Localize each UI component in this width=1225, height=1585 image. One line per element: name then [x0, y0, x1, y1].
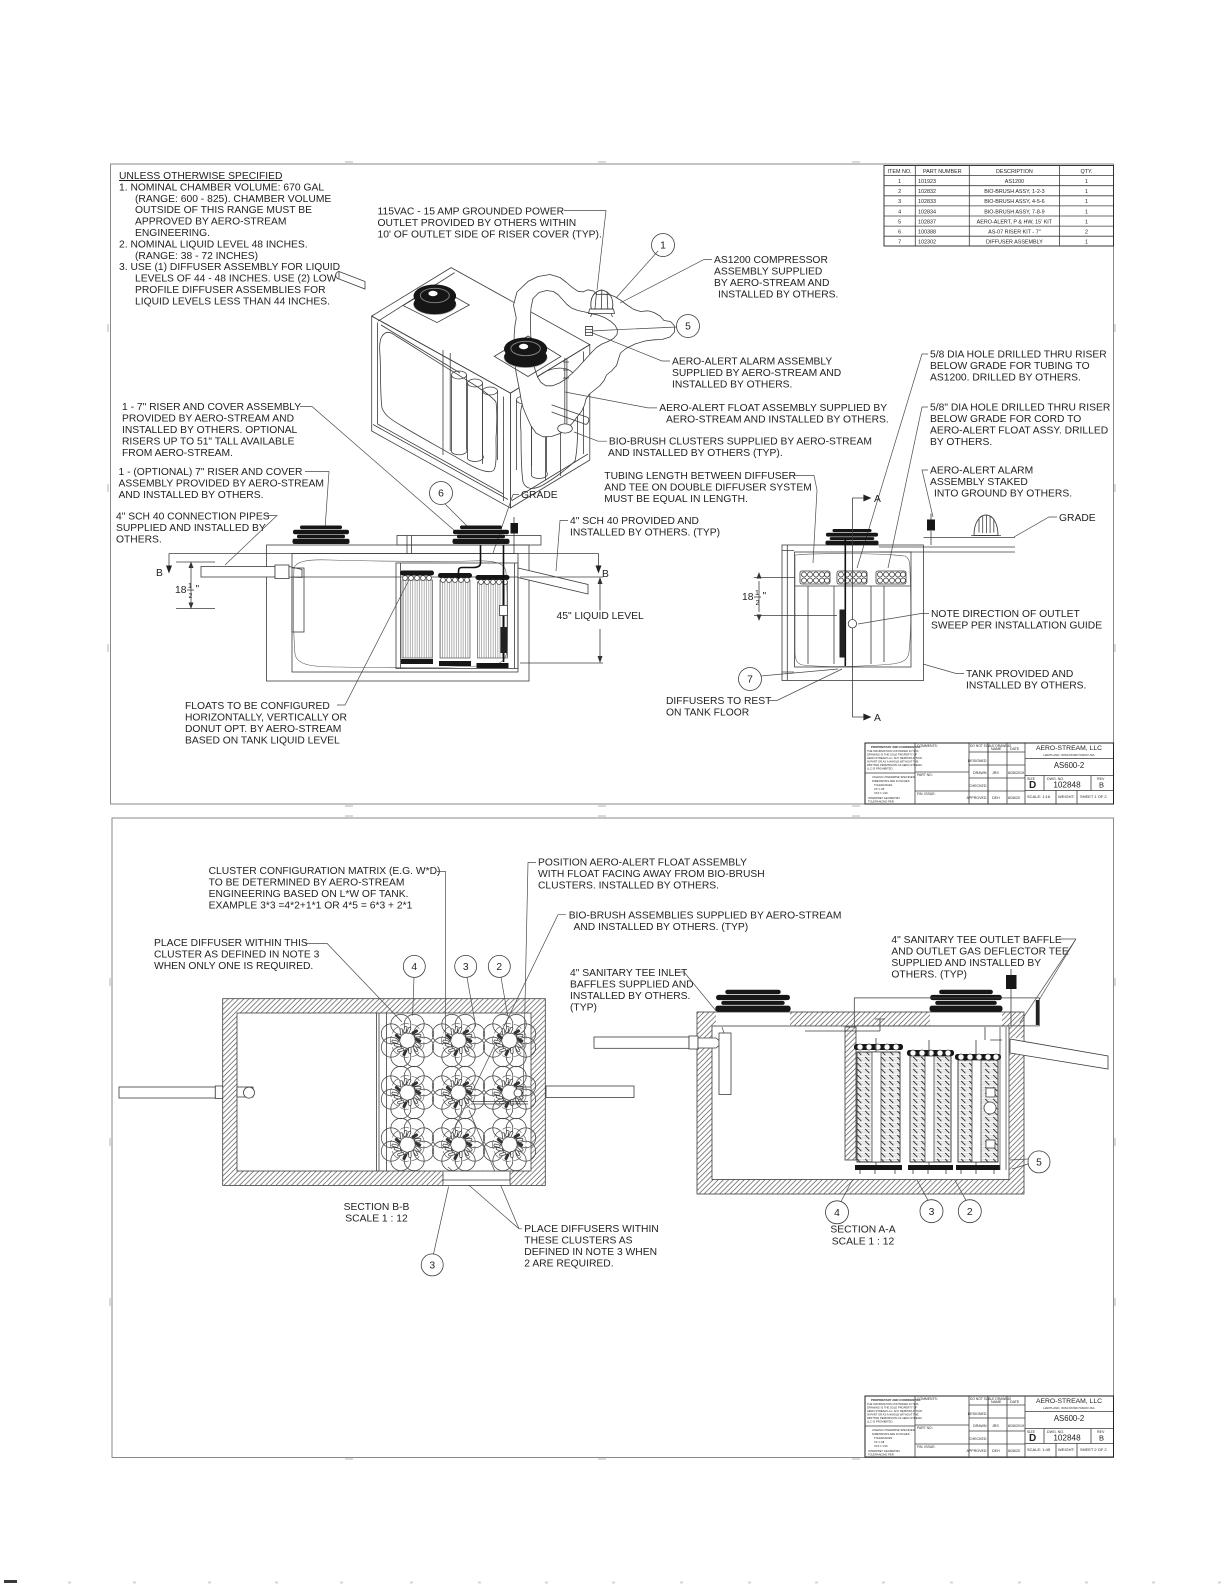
- svg-text:1: 1: [188, 583, 192, 590]
- svg-text:UNLESS OTHERWISE SPECIFIED: UNLESS OTHERWISE SPECIFIED: [119, 171, 282, 182]
- svg-text:DEH: DEH: [992, 796, 1000, 800]
- svg-text:SCALE 1 : 12: SCALE 1 : 12: [345, 1214, 408, 1225]
- svg-text:ENGINEERING BASED ON L*W OF TA: ENGINEERING BASED ON L*W OF TANK.: [209, 889, 409, 900]
- svg-text:SECTION B-B: SECTION B-B: [344, 1202, 410, 1213]
- svg-text:102832: 102832: [918, 189, 936, 195]
- svg-text:B: B: [1099, 781, 1104, 790]
- svg-text:AND TEE ON DOUBLE DIFFUSER SYS: AND TEE ON DOUBLE DIFFUSER SYSTEM: [604, 483, 812, 494]
- svg-text:1: 1: [1085, 199, 1088, 205]
- svg-text:HARTLAND, WISCONSIN 53029 USA: HARTLAND, WISCONSIN 53029 USA: [1043, 753, 1094, 757]
- svg-text:DRAWN: DRAWN: [973, 771, 987, 775]
- svg-text:DESCRIPTION: DESCRIPTION: [996, 169, 1033, 175]
- svg-text:SCALE: 1:16: SCALE: 1:16: [1027, 794, 1051, 799]
- svg-text:ON TANK FLOOR: ON TANK FLOOR: [666, 708, 749, 719]
- svg-text:INSTALLED BY OTHERS. (TYP): INSTALLED BY OTHERS. (TYP): [570, 528, 720, 539]
- svg-text:D: D: [1029, 780, 1036, 791]
- svg-text:TUBING LENGTH BETWEEN DIFFUSER: TUBING LENGTH BETWEEN DIFFUSER: [604, 471, 796, 482]
- svg-text:AND INSTALLED BY OTHERS (TYP).: AND INSTALLED BY OTHERS (TYP).: [608, 448, 783, 459]
- svg-text:XXX ± 1/16: XXX ± 1/16: [874, 791, 888, 795]
- svg-text:2: 2: [756, 600, 760, 607]
- svg-text:AERO-ALERT, P & HW, 15' KIT: AERO-ALERT, P & HW, 15' KIT: [977, 219, 1053, 225]
- svg-text:OTHERS. (TYP): OTHERS. (TYP): [891, 970, 967, 981]
- svg-text:COMMENTS:: COMMENTS:: [917, 744, 938, 748]
- svg-text:BIO-BRUSH ASSY, 7-8-9: BIO-BRUSH ASSY, 7-8-9: [984, 209, 1044, 215]
- svg-text:HORIZONTALLY, VERTICALLY OR: HORIZONTALLY, VERTICALLY OR: [185, 713, 347, 724]
- svg-text:1: 1: [1085, 219, 1088, 225]
- svg-text:INSTALLED BY OTHERS.: INSTALLED BY OTHERS.: [672, 380, 792, 391]
- svg-text:1: 1: [1085, 179, 1088, 185]
- svg-text:LEVELS OF 44 - 48 INCHES. USE: LEVELS OF 44 - 48 INCHES. USE (2) LOW: [135, 274, 337, 285]
- svg-text:AERO-ALERT FLOAT ASSEMBLY SUPP: AERO-ALERT FLOAT ASSEMBLY SUPPLIED BY: [659, 403, 887, 414]
- svg-text:PART NO:: PART NO:: [917, 773, 933, 777]
- svg-text:ASSEMBLY STAKED: ASSEMBLY STAKED: [930, 477, 1028, 488]
- svg-text:INSTALLED BY OTHERS.: INSTALLED BY OTHERS.: [966, 681, 1086, 692]
- svg-text:AERO-ALERT ALARM: AERO-ALERT ALARM: [930, 466, 1033, 477]
- svg-text:OUTSIDE OF THIS RANGE MUST BE: OUTSIDE OF THIS RANGE MUST BE: [135, 205, 312, 216]
- svg-text:DESIGNED: DESIGNED: [968, 759, 987, 763]
- svg-text:APPROVED BY AERO-STREAM: APPROVED BY AERO-STREAM: [135, 217, 286, 228]
- svg-text:AND OUTLET GAS DEFLECTOR TEE: AND OUTLET GAS DEFLECTOR TEE: [891, 947, 1069, 958]
- svg-text:4" SCH 40 PROVIDED AND: 4" SCH 40 PROVIDED AND: [570, 516, 699, 527]
- svg-text:8/28/2019: 8/28/2019: [1008, 771, 1024, 775]
- svg-text:THE INFORMATION CONTAINED IN T: THE INFORMATION CONTAINED IN THIS: [867, 749, 919, 753]
- svg-text:CHECKED: CHECKED: [969, 784, 987, 788]
- svg-text:MUST BE EQUAL IN LENGTH.: MUST BE EQUAL IN LENGTH.: [604, 494, 748, 505]
- svg-text:FLOATS TO BE CONFIGURED: FLOATS TO BE CONFIGURED: [185, 701, 330, 712]
- svg-text:BASED ON TANK LIQUID LEVEL: BASED ON TANK LIQUID LEVEL: [185, 736, 340, 747]
- svg-text:B: B: [156, 568, 163, 579]
- svg-text:(TYP): (TYP): [570, 1003, 597, 1014]
- svg-text:LLC IS PROHIBITED.: LLC IS PROHIBITED.: [867, 767, 893, 771]
- svg-text:BY OTHERS.: BY OTHERS.: [930, 437, 992, 448]
- svg-text:2: 2: [496, 962, 502, 973]
- svg-text:1. NOMINAL CHAMBER VOLUME: 6: 1. NOMINAL CHAMBER VOLUME: 670 GAL: [119, 182, 324, 193]
- svg-text:2: 2: [898, 189, 901, 195]
- svg-text:5: 5: [898, 219, 901, 225]
- svg-text:7: 7: [747, 675, 753, 686]
- svg-text:CLUSTER CONFIGURATION MATRIX (: CLUSTER CONFIGURATION MATRIX (E.G. W*D): [209, 866, 441, 877]
- svg-text:INSTALLED BY OTHERS.: INSTALLED BY OTHERS.: [718, 290, 838, 301]
- svg-text:AERO-STREAM LLC. ANY REPRODUC: AERO-STREAM LLC. ANY REPRODUCTION: [867, 756, 922, 760]
- svg-text:THESE CLUSTERS AS: THESE CLUSTERS AS: [524, 1236, 632, 1247]
- svg-text:PART NUMBER: PART NUMBER: [923, 169, 962, 175]
- svg-text:115VAC - 15 AMP GROUNDED POWER: 115VAC - 15 AMP GROUNDED POWER: [378, 207, 565, 218]
- svg-text:": ": [196, 584, 200, 595]
- svg-text:BIO-BRUSH ASSY, 1-2-3: BIO-BRUSH ASSY, 1-2-3: [984, 189, 1044, 195]
- svg-text:GRADE: GRADE: [521, 490, 558, 501]
- svg-text:DEFINED IN NOTE 3 WHEN: DEFINED IN NOTE 3 WHEN: [524, 1247, 657, 1258]
- svg-text:3. USE (1) DIFFUSER ASSEMBLY: 3. USE (1) DIFFUSER ASSEMBLY FOR LIQUID: [119, 262, 340, 273]
- svg-text:AND INSTALLED BY OTHERS. (TYP: AND INSTALLED BY OTHERS. (TYP): [574, 922, 749, 933]
- svg-text:APPROVED: APPROVED: [967, 796, 987, 800]
- svg-text:5/8" DIA HOLE DRILLED THRU RIS: 5/8" DIA HOLE DRILLED THRU RISER: [930, 403, 1110, 414]
- svg-text:SUPPLIED AND INSTALLED BY: SUPPLIED AND INSTALLED BY: [891, 958, 1041, 969]
- svg-text:AS600-2: AS600-2: [1054, 761, 1084, 770]
- svg-text:102837: 102837: [918, 219, 936, 225]
- svg-text:102833: 102833: [918, 199, 936, 205]
- svg-text:WHEN ONLY ONE IS REQUIRED.: WHEN ONLY ONE IS REQUIRED.: [154, 961, 313, 972]
- svg-text:4" SANITARY TEE OUTLET BAFFLE: 4" SANITARY TEE OUTLET BAFFLE: [891, 935, 1061, 946]
- svg-text:IN PART OR AS A WHOLE WITHOUT: IN PART OR AS A WHOLE WITHOUT THE: [867, 760, 919, 764]
- svg-text:2 ARE REQUIRED.: 2 ARE REQUIRED.: [524, 1259, 613, 1270]
- svg-text:BY AERO-STREAM AND: BY AERO-STREAM AND: [714, 278, 829, 289]
- svg-text:INTERPRET GEOMETRIC: INTERPRET GEOMETRIC: [868, 796, 900, 800]
- svg-text:TOLERANCING PER:: TOLERANCING PER:: [868, 800, 895, 804]
- svg-text:FIN. ISSUE:: FIN. ISSUE:: [917, 792, 936, 796]
- svg-text:WITH FLOAT FACING AWAY FROM BI: WITH FLOAT FACING AWAY FROM BIO-BRUSH: [538, 869, 765, 880]
- svg-text:QTY.: QTY.: [1081, 169, 1093, 175]
- svg-text:SUPPLIED BY AERO-STREAM AND: SUPPLIED BY AERO-STREAM AND: [672, 368, 841, 379]
- svg-text:PLACE DIFFUSER WITHIN THIS: PLACE DIFFUSER WITHIN THIS: [154, 938, 308, 949]
- svg-text:NOTE DIRECTION OF OUTLET: NOTE DIRECTION OF OUTLET: [931, 609, 1080, 620]
- svg-text:AERO-ALERT ALARM ASSEMBLY: AERO-ALERT ALARM ASSEMBLY: [672, 357, 832, 368]
- svg-text:3: 3: [429, 1261, 435, 1272]
- svg-text:PROFILE DIFFUSER ASSEMBLIES FO: PROFILE DIFFUSER ASSEMBLIES FOR: [135, 285, 326, 296]
- svg-text:ASSEMBLY SUPPLIED: ASSEMBLY SUPPLIED: [714, 267, 822, 278]
- svg-text:6: 6: [438, 489, 444, 500]
- svg-text:TO BE DETERMINED BY AERO-STREA: TO BE DETERMINED BY AERO-STREAM: [209, 878, 405, 889]
- svg-text:GRADE: GRADE: [1059, 513, 1096, 524]
- svg-text:DATE: DATE: [1010, 747, 1020, 751]
- svg-text:ASSEMBLY PROVIDED BY AERO-STRE: ASSEMBLY PROVIDED BY AERO-STREAM: [119, 479, 324, 490]
- svg-text:WRITTEN PERMISSION OF AERO-STR: WRITTEN PERMISSION OF AERO-STREAM: [867, 763, 922, 767]
- svg-text:BIO-BRUSH ASSEMBLIES SUPPLIED: BIO-BRUSH ASSEMBLIES SUPPLIED BY AERO-ST…: [569, 911, 842, 922]
- svg-text:PROVIDED BY AERO-STREAM AND: PROVIDED BY AERO-STREAM AND: [122, 414, 294, 425]
- svg-text:BIO-BRUSH ASSY, 4-5-6: BIO-BRUSH ASSY, 4-5-6: [984, 199, 1044, 205]
- svg-text:A: A: [874, 713, 881, 724]
- svg-text:DIFFUSER ASSEMBLY: DIFFUSER ASSEMBLY: [986, 240, 1043, 246]
- svg-text:": ": [763, 591, 767, 602]
- svg-text:101923: 101923: [918, 179, 936, 185]
- svg-text:SCALE 1 : 12: SCALE 1 : 12: [832, 1237, 895, 1248]
- svg-text:INTO GROUND BY OTHERS.: INTO GROUND BY OTHERS.: [934, 489, 1072, 500]
- svg-text:2: 2: [967, 1207, 973, 1218]
- svg-text:5/8 DIA HOLE DRILLED THRU RISE: 5/8 DIA HOLE DRILLED THRU RISER: [930, 350, 1107, 361]
- svg-text:OTHERS.: OTHERS.: [116, 535, 162, 546]
- svg-text:BELOW GRADE FOR CORD TO: BELOW GRADE FOR CORD TO: [930, 414, 1081, 425]
- svg-text:PLACE DIFFUSERS WITHIN: PLACE DIFFUSERS WITHIN: [524, 1224, 658, 1235]
- svg-text:1: 1: [660, 241, 666, 252]
- svg-text:RISERS UP TO 51" TALL AVAILABL: RISERS UP TO 51" TALL AVAILABLE: [122, 437, 295, 448]
- svg-text:A: A: [874, 494, 881, 505]
- svg-text:ENGINEERING.: ENGINEERING.: [135, 228, 210, 239]
- svg-text:CLUSTER AS DEFINED IN NOTE 3: CLUSTER AS DEFINED IN NOTE 3: [154, 950, 320, 961]
- svg-text:POSITION AERO-ALERT FLOAT ASSE: POSITION AERO-ALERT FLOAT ASSEMBLY: [538, 858, 747, 869]
- svg-text:4" SANITARY TEE INLET: 4" SANITARY TEE INLET: [570, 968, 688, 979]
- svg-text:7: 7: [898, 240, 901, 246]
- svg-text:18: 18: [742, 592, 754, 603]
- svg-text:(RANGE: 600 - 825). CHAMBER VO: (RANGE: 600 - 825). CHAMBER VOLUME: [135, 194, 331, 205]
- svg-text:SHEET 1 OF 2: SHEET 1 OF 2: [1080, 794, 1107, 799]
- svg-text:1: 1: [1085, 189, 1088, 195]
- svg-text:2: 2: [189, 593, 193, 600]
- svg-text:UNLESS OTHERWISE SPECIFIED: UNLESS OTHERWISE SPECIFIED: [872, 775, 915, 779]
- svg-text:AERO-ALERT FLOAT ASSY. DRILLE: AERO-ALERT FLOAT ASSY. DRILLED: [930, 426, 1108, 437]
- svg-text:CLUSTERS. INSTALLED BY OTHERS: CLUSTERS. INSTALLED BY OTHERS.: [538, 881, 719, 892]
- svg-text:1: 1: [898, 179, 901, 185]
- svg-text:AS1200. DRILLED BY OTHERS.: AS1200. DRILLED BY OTHERS.: [930, 373, 1081, 384]
- svg-text:5: 5: [1036, 1158, 1042, 1169]
- svg-text:102848: 102848: [1053, 781, 1081, 790]
- svg-text:3: 3: [463, 962, 469, 973]
- svg-text:INSTALLED BY OTHERS. OPTIONAL: INSTALLED BY OTHERS. OPTIONAL: [122, 425, 298, 436]
- svg-text:DIMENSIONS ARE IN INCHES: DIMENSIONS ARE IN INCHES: [872, 779, 910, 783]
- svg-text:10' OF OUTLET SIDE OF RISER CO: 10' OF OUTLET SIDE OF RISER COVER (TYP).: [378, 230, 602, 241]
- svg-text:8/28/20: 8/28/20: [1008, 796, 1020, 800]
- svg-text:WEIGHT:: WEIGHT:: [1058, 794, 1075, 799]
- svg-text:LIQUID LEVELS LESS THAN 44 INC: LIQUID LEVELS LESS THAN 44 INCHES.: [135, 296, 330, 307]
- svg-text:AS1200: AS1200: [1005, 179, 1024, 185]
- svg-text:4: 4: [411, 962, 417, 973]
- svg-text:2. NOMINAL LIQUID LEVEL 48 IN: 2. NOMINAL LIQUID LEVEL 48 INCHES.: [119, 239, 308, 250]
- svg-text:AS1200 COMPRESSOR: AS1200 COMPRESSOR: [714, 255, 828, 266]
- svg-text:DIFFUSERS TO REST: DIFFUSERS TO REST: [666, 696, 772, 707]
- svg-text:1 - (OPTIONAL) 7" RISER AND CO: 1 - (OPTIONAL) 7" RISER AND COVER: [119, 467, 303, 478]
- svg-text:1: 1: [1085, 240, 1088, 246]
- svg-text:B: B: [602, 569, 609, 580]
- svg-text:100388: 100388: [918, 230, 936, 236]
- svg-text:3: 3: [898, 199, 901, 205]
- svg-text:4" SCH 40 CONNECTION PIPES: 4" SCH 40 CONNECTION PIPES: [116, 512, 270, 523]
- svg-text:6: 6: [898, 230, 901, 236]
- svg-text:102302: 102302: [918, 240, 936, 246]
- svg-text:1: 1: [1085, 209, 1088, 215]
- svg-text:4: 4: [898, 209, 901, 215]
- svg-text:1: 1: [755, 590, 759, 597]
- svg-text:AND INSTALLED BY OTHERS.: AND INSTALLED BY OTHERS.: [119, 490, 264, 501]
- svg-text:3: 3: [929, 1207, 935, 1218]
- svg-text:BELOW GRADE FOR TUBING TO: BELOW GRADE FOR TUBING TO: [930, 361, 1090, 372]
- svg-text:XX ± 1/8: XX ± 1/8: [874, 787, 885, 791]
- svg-text:SUPPLIED AND INSTALLED BY: SUPPLIED AND INSTALLED BY: [116, 523, 266, 534]
- svg-text:PROPRIETARY AND CONFIDENTIAL: PROPRIETARY AND CONFIDENTIAL: [871, 745, 921, 749]
- svg-text:TOLERANCES:: TOLERANCES:: [874, 783, 893, 787]
- svg-text:EXAMPLE 3*3 =4*2+1*1 OR 4*5 =: EXAMPLE 3*3 =4*2+1*1 OR 4*5 = 6*3 + 2*1: [209, 901, 413, 912]
- svg-text:DRAWING IS THE SOLE PROPERTY O: DRAWING IS THE SOLE PROPERTY OF: [867, 753, 917, 757]
- svg-text:OUTLET PROVIDED BY OTHERS WITH: OUTLET PROVIDED BY OTHERS WITHIN: [378, 218, 577, 229]
- svg-text:BIO-BRUSH CLUSTERS SUPPLIED BY: BIO-BRUSH CLUSTERS SUPPLIED BY AERO-STRE…: [609, 437, 872, 448]
- svg-text:45" LIQUID LEVEL: 45" LIQUID LEVEL: [557, 611, 644, 622]
- svg-text:BAFFLES SUPPLIED AND: BAFFLES SUPPLIED AND: [570, 980, 694, 991]
- svg-text:AERO-STREAM AND INSTALLED BY O: AERO-STREAM AND INSTALLED BY OTHERS.: [666, 414, 889, 425]
- svg-text:18: 18: [175, 585, 187, 596]
- svg-text:102834: 102834: [918, 209, 936, 215]
- svg-text:DO NOT SCALE DRAWING: DO NOT SCALE DRAWING: [970, 744, 1012, 748]
- svg-text:AS-07 RISER KIT - 7": AS-07 RISER KIT - 7": [988, 230, 1041, 236]
- svg-text:SWEEP PER INSTALLATION GUIDE: SWEEP PER INSTALLATION GUIDE: [931, 621, 1102, 632]
- svg-text:1 - 7" RISER AND COVER ASSEMBL: 1 - 7" RISER AND COVER ASSEMBLY: [122, 402, 301, 413]
- svg-text:2: 2: [1085, 230, 1088, 236]
- svg-text:4: 4: [834, 1208, 840, 1219]
- svg-text:ITEM NO.: ITEM NO.: [888, 169, 912, 175]
- svg-text:5: 5: [685, 322, 691, 333]
- svg-text:INSTALLED BY OTHERS.: INSTALLED BY OTHERS.: [570, 991, 690, 1002]
- svg-text:AERO-STREAM, LLC: AERO-STREAM, LLC: [1036, 745, 1102, 752]
- svg-text:(RANGE: 38 - 72 INCHES): (RANGE: 38 - 72 INCHES): [135, 251, 258, 262]
- svg-text:SCALE: 1:45: SCALE: 1:45: [1027, 1447, 1051, 1452]
- svg-text:TANK PROVIDED AND: TANK PROVIDED AND: [966, 669, 1073, 680]
- svg-text:FROM AERO-STREAM.: FROM AERO-STREAM.: [122, 448, 233, 459]
- svg-text:DONUT OPT. BY AERO-STREAM: DONUT OPT. BY AERO-STREAM: [185, 724, 341, 735]
- svg-text:JRS: JRS: [992, 771, 999, 775]
- svg-text:SECTION A-A: SECTION A-A: [830, 1225, 895, 1236]
- svg-text:SHEET 2 OF 2: SHEET 2 OF 2: [1080, 1447, 1107, 1452]
